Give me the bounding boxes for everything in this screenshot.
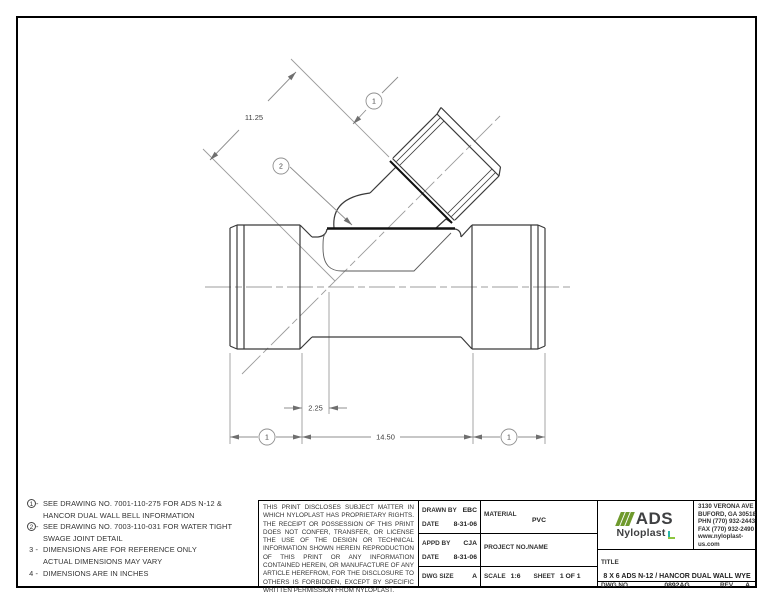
note-2-number: 2 xyxy=(27,522,36,531)
saddle-inner-outline xyxy=(323,232,451,271)
note-1: 1- SEE DRAWING NO. 7001-110-275 FOR ADS … xyxy=(27,498,259,510)
date2-label: DATE xyxy=(422,554,439,561)
sheet-value: 1 OF 1 xyxy=(560,573,581,580)
note-1-text: SEE DRAWING NO. 7001-110-275 FOR ADS N-1… xyxy=(43,498,259,510)
ads-logo-text: ADS xyxy=(636,511,673,526)
material-cell: MATERIAL PVC xyxy=(481,501,597,534)
date1-label: DATE xyxy=(422,521,439,528)
note-2: 2- SEE DRAWING NO. 7003-110-031 FOR WATE… xyxy=(27,521,259,533)
notes-list: 1- SEE DRAWING NO. 7001-110-275 FOR ADS … xyxy=(27,498,259,579)
note-1-number: 1 xyxy=(27,499,36,508)
dwg-size-value: A xyxy=(472,573,477,580)
rev-label: REV xyxy=(720,582,733,589)
title-cell: TITLE 8 X 6 ADS N-12 / HANCOR DUAL WALL … xyxy=(598,550,756,582)
drawn-by-label: DRAWN BY xyxy=(422,507,457,514)
scale-sheet-cell: SCALE 1:6 SHEET 1 OF 1 xyxy=(481,567,597,586)
sheet-label: SHEET xyxy=(534,573,555,580)
rev-value: A xyxy=(745,582,750,589)
svg-text:1: 1 xyxy=(372,99,376,106)
balloon-bottom-right: 1 xyxy=(501,429,517,445)
balloon-callouts: 1 2 1 1 xyxy=(259,93,517,445)
note-4-number: 4 xyxy=(29,569,33,578)
appd-by-cell: APPD BYCJA DATE8-31-06 xyxy=(419,534,480,567)
dim-branch-length: 11.25 xyxy=(245,113,263,122)
project-label: PROJECT NO./NAME xyxy=(484,544,548,551)
project-cell: PROJECT NO./NAME xyxy=(481,534,597,567)
note-3: 3 - DIMENSIONS ARE FOR REFERENCE ONLY xyxy=(27,544,259,556)
note-2-text2: SWAGE JOINT DETAIL xyxy=(27,533,259,545)
dwg-size-label: DWG SIZE xyxy=(422,573,454,580)
dimension-text: 11.25 2.25 14.50 xyxy=(245,113,395,442)
note-2-text: SEE DRAWING NO. 7003-110-031 FOR WATER T… xyxy=(43,521,259,533)
title-label: TITLE xyxy=(601,559,619,566)
svg-text:1: 1 xyxy=(507,435,511,442)
material-value: PVC xyxy=(481,517,597,524)
note-4: 4 - DIMENSIONS ARE IN INCHES xyxy=(27,568,259,580)
centerlines xyxy=(205,116,570,374)
drawn-by-value: EBC xyxy=(463,507,477,514)
scale-label: SCALE xyxy=(484,573,506,580)
svg-text:1: 1 xyxy=(265,435,269,442)
title-block: THIS PRINT DISCLOSES SUBJECT MATTER IN W… xyxy=(258,500,756,586)
address-line1: 3130 VERONA AVE xyxy=(698,503,756,511)
appd-by-label: APPD BY xyxy=(422,540,450,547)
svg-text:2: 2 xyxy=(279,164,283,171)
dimension-arrowheads xyxy=(210,72,545,440)
date1-value: 8-31-06 xyxy=(454,521,477,528)
note-1-text2: HANCOR DUAL WALL BELL INFORMATION xyxy=(27,510,259,522)
address-line4: FAX (770) 932-2490 xyxy=(698,526,756,534)
proprietary-disclaimer: THIS PRINT DISCLOSES SUBJECT MATTER IN W… xyxy=(259,501,419,586)
address-line3: PHN (770) 932-2443 xyxy=(698,518,756,526)
logo-address-row: ADS Nyloplast 3130 VERONA AVE BUFORD, GA… xyxy=(598,501,756,550)
scale-value: 1:6 xyxy=(511,573,521,580)
appd-by-value: CJA xyxy=(463,540,477,547)
address-line2: BUFORD, GA 30518 xyxy=(698,511,756,519)
dwg-no-cell: DWG NO. 0892AG REV A xyxy=(598,582,756,589)
company-address: 3130 VERONA AVE BUFORD, GA 30518 PHN (77… xyxy=(694,501,756,549)
drawn-by-cell: DRAWN BYEBC DATE8-31-06 xyxy=(419,501,480,534)
note-3-text: DIMENSIONS ARE FOR REFERENCE ONLY xyxy=(43,544,259,556)
note-3-text2: ACTUAL DIMENSIONS MAY VARY xyxy=(27,556,259,568)
dim-laying-length: 14.50 xyxy=(376,433,395,442)
material-column: MATERIAL PVC PROJECT NO./NAME SCALE 1:6 … xyxy=(481,501,598,586)
dimension-lines xyxy=(210,72,545,437)
dim-bell-offset: 2.25 xyxy=(308,404,323,413)
note-3-number: 3 xyxy=(29,545,33,554)
nyloplast-logo-text: Nyloplast xyxy=(616,527,665,539)
branch-outline xyxy=(334,108,501,229)
dwg-size-cell: DWG SIZEA xyxy=(419,567,480,586)
drawing-title: 8 X 6 ADS N-12 / HANCOR DUAL WALL WYE xyxy=(601,573,753,580)
drawing-sheet: 11.25 2.25 14.50 1 2 1 1 xyxy=(0,0,776,600)
date2-value: 8-31-06 xyxy=(454,554,477,561)
ads-nyloplast-logo: ADS Nyloplast xyxy=(598,501,694,549)
note-4-text: DIMENSIONS ARE IN INCHES xyxy=(43,568,259,580)
balloon-top: 1 xyxy=(366,93,382,109)
address-line5: www.nyloplast-us.com xyxy=(698,533,756,548)
approvals-column: DRAWN BYEBC DATE8-31-06 APPD BYCJA DATE8… xyxy=(419,501,481,586)
nyloplast-mark-icon xyxy=(668,531,675,539)
company-column: ADS Nyloplast 3130 VERONA AVE BUFORD, GA… xyxy=(598,501,756,586)
balloon-swage: 2 xyxy=(273,158,289,174)
balloon-bottom-left: 1 xyxy=(259,429,275,445)
